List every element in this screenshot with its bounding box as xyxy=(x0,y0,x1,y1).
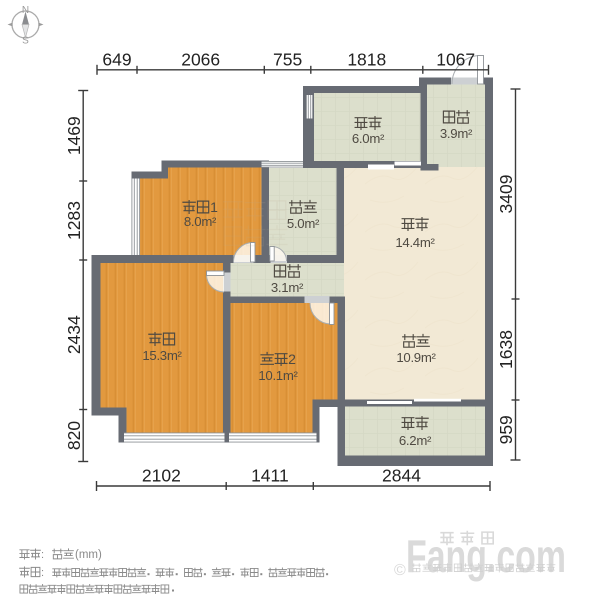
svg-text:820: 820 xyxy=(64,421,84,450)
svg-text:1283: 1283 xyxy=(64,201,84,240)
svg-text:10.1m²: 10.1m² xyxy=(258,368,298,383)
svg-text:14.4m²: 14.4m² xyxy=(395,235,435,250)
svg-text:1469: 1469 xyxy=(64,116,84,155)
svg-text:2: 2 xyxy=(288,351,296,367)
svg-text::: : xyxy=(41,567,44,579)
svg-text:3.9m²: 3.9m² xyxy=(440,126,473,141)
svg-text:2844: 2844 xyxy=(382,466,421,486)
svg-text:3.1m²: 3.1m² xyxy=(271,280,304,295)
svg-text::: : xyxy=(41,549,44,561)
svg-text:1638: 1638 xyxy=(496,330,516,369)
svg-text:959: 959 xyxy=(496,415,516,444)
svg-text:2102: 2102 xyxy=(142,466,181,486)
svg-text:5.0m²: 5.0m² xyxy=(287,216,320,231)
svg-text:6.0m²: 6.0m² xyxy=(352,131,385,146)
svg-text:2066: 2066 xyxy=(181,49,220,69)
svg-text:6.2m²: 6.2m² xyxy=(399,433,432,448)
svg-text:649: 649 xyxy=(102,49,131,69)
svg-text:©: © xyxy=(394,562,406,579)
svg-text:3409: 3409 xyxy=(496,175,516,214)
svg-text:(mm): (mm) xyxy=(75,549,102,561)
svg-text:1818: 1818 xyxy=(347,49,386,69)
svg-text:1067: 1067 xyxy=(436,49,475,69)
svg-text:755: 755 xyxy=(273,49,302,69)
svg-text:1411: 1411 xyxy=(251,466,289,486)
svg-text:1: 1 xyxy=(210,199,218,215)
svg-text:8.0m²: 8.0m² xyxy=(184,214,217,229)
svg-text:10.9m²: 10.9m² xyxy=(396,350,436,365)
svg-text:15.3m²: 15.3m² xyxy=(142,348,182,363)
svg-text:2434: 2434 xyxy=(64,315,84,354)
svg-text:Fang.com: Fang.com xyxy=(406,530,566,582)
